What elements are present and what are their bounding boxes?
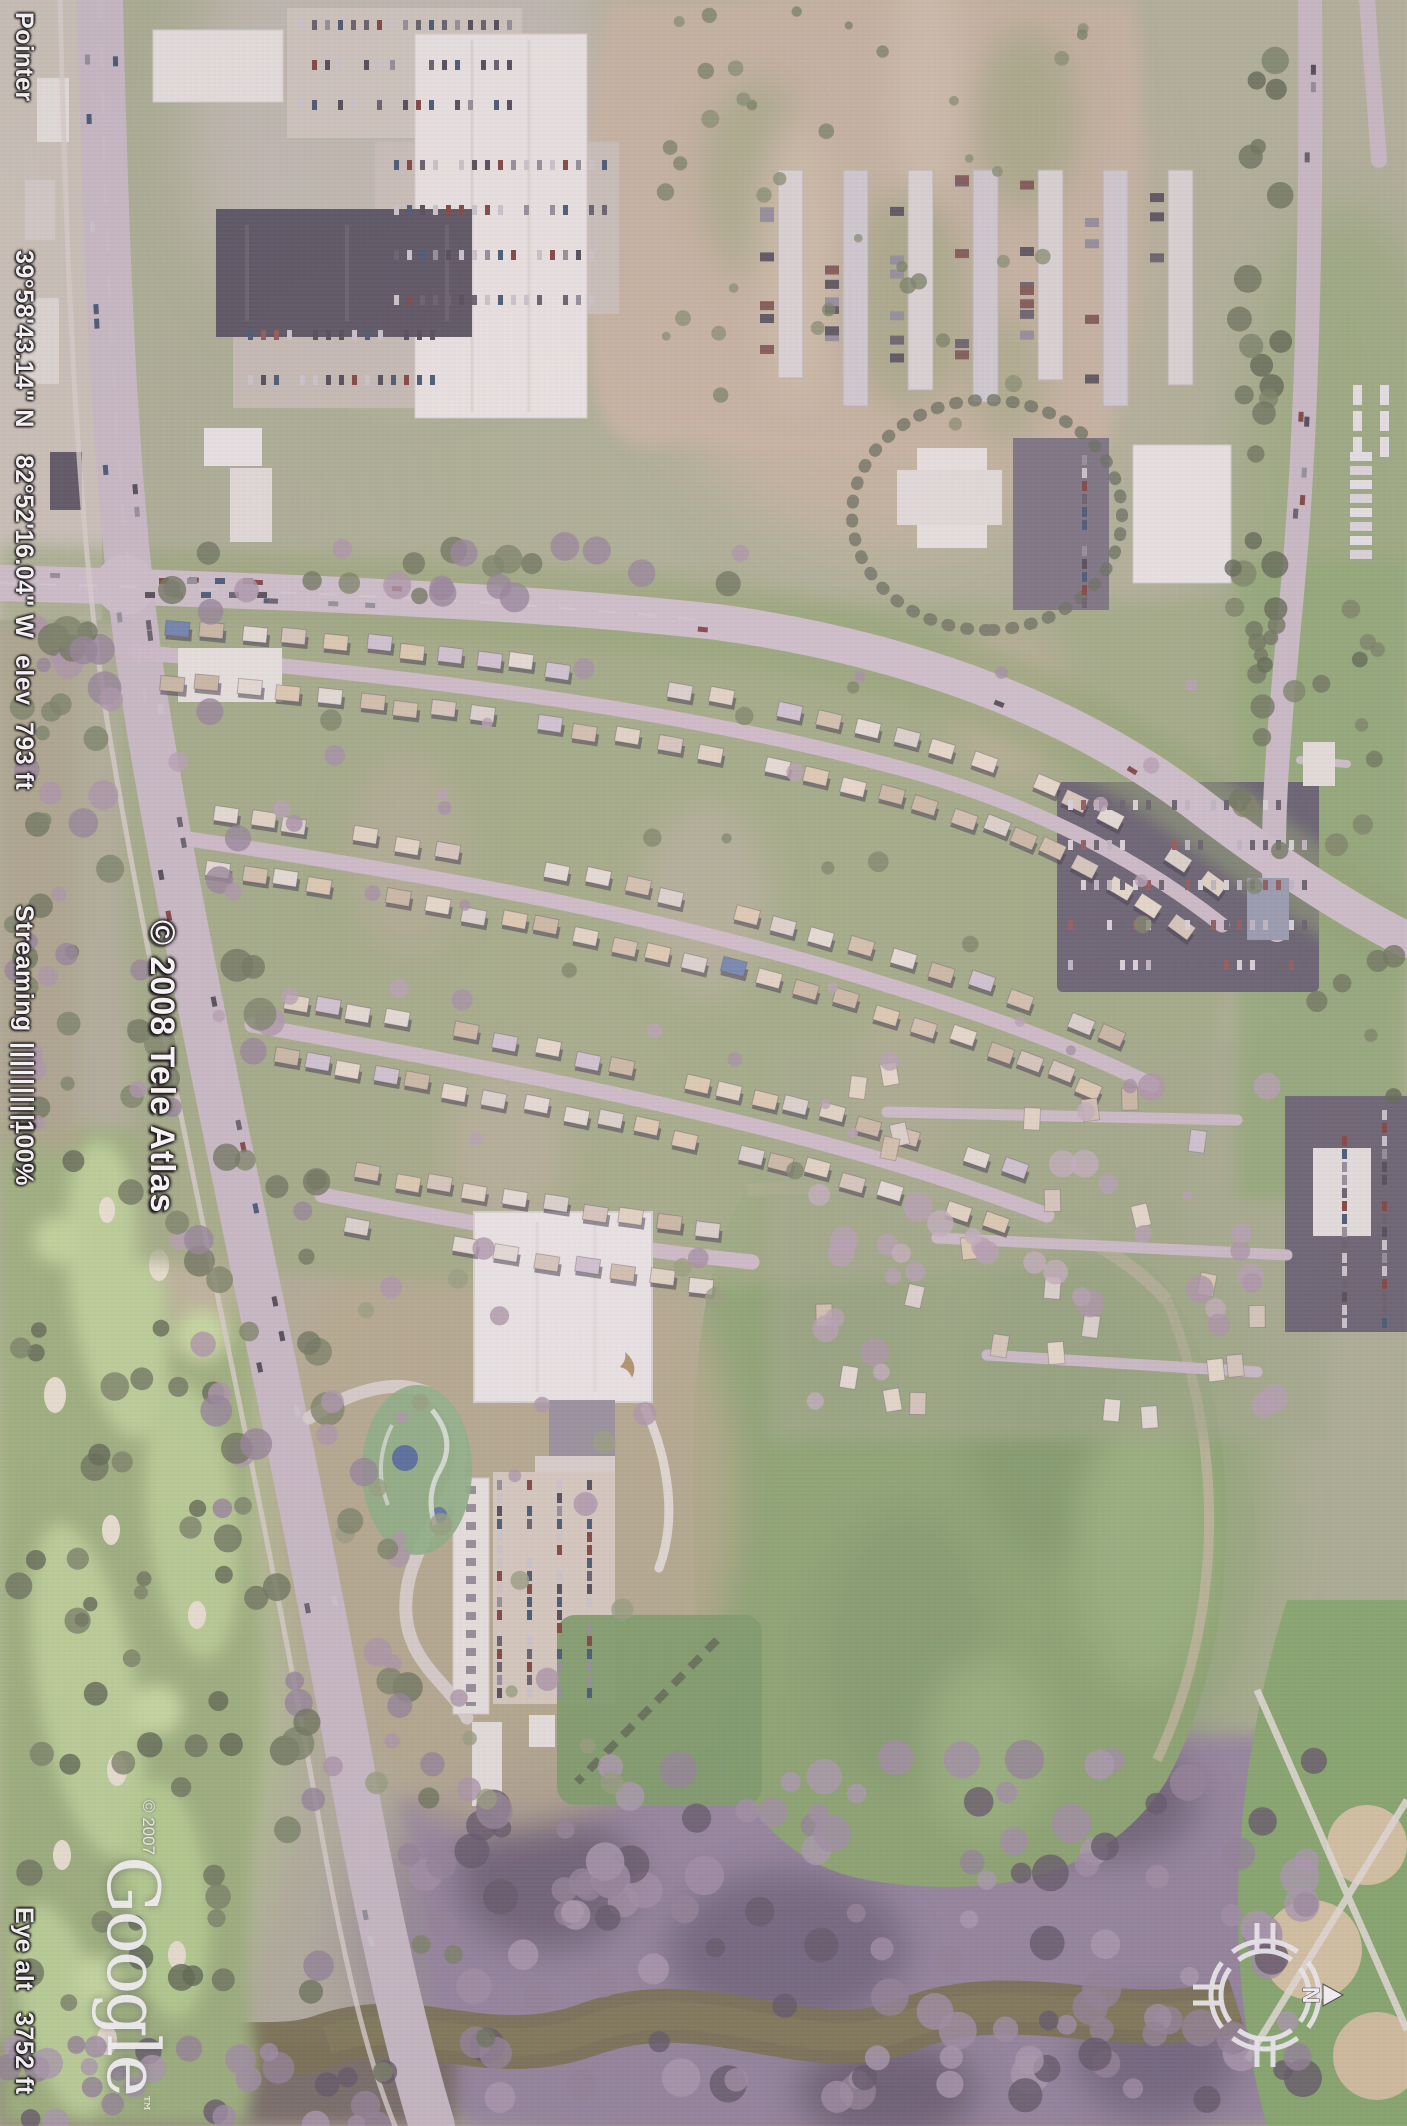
google-logo: Google™: [91, 1856, 175, 2113]
status-eye-alt-value: 3752 ft: [9, 2012, 38, 2095]
status-elev-label: elev: [9, 655, 38, 706]
map-viewport[interactable]: Pointer 39°58'43.14" N 82°52'16.04" W el…: [0, 0, 1407, 2126]
status-streaming-percent: 100%: [9, 1120, 38, 1186]
google-logo-text: Google: [91, 1856, 175, 2094]
compass-tick-east: [1257, 2039, 1273, 2067]
compass-north-arrow: [1323, 1984, 1343, 2006]
compass-north-label: N: [1298, 1987, 1324, 2004]
compass-tick-south: [1193, 1987, 1221, 2003]
compass-tick-west: [1257, 1923, 1273, 1951]
streaming-progress-bars: ||||||||||: [9, 1042, 38, 1132]
map-data-copyright: © 2008 Tele Atlas: [142, 920, 181, 1213]
compass-control[interactable]: N: [1185, 1915, 1345, 2075]
status-longitude: 82°52'16.04" W: [9, 455, 38, 639]
google-logo-tm: ™: [131, 2094, 153, 2113]
status-eye-alt-label: Eye alt: [9, 1907, 38, 1991]
status-latitude: 39°58'43.14" N: [9, 250, 38, 428]
status-elev-value: 793 ft: [9, 722, 38, 790]
scanned-screenshot-page: Pointer 39°58'43.14" N 82°52'16.04" W el…: [0, 0, 1407, 2126]
imagery-copyright: © 2007: [138, 1800, 158, 1855]
aerial-imagery: [0, 0, 1407, 2126]
status-pointer-label: Pointer: [9, 12, 38, 102]
status-streaming-label: Streaming: [9, 905, 38, 1032]
